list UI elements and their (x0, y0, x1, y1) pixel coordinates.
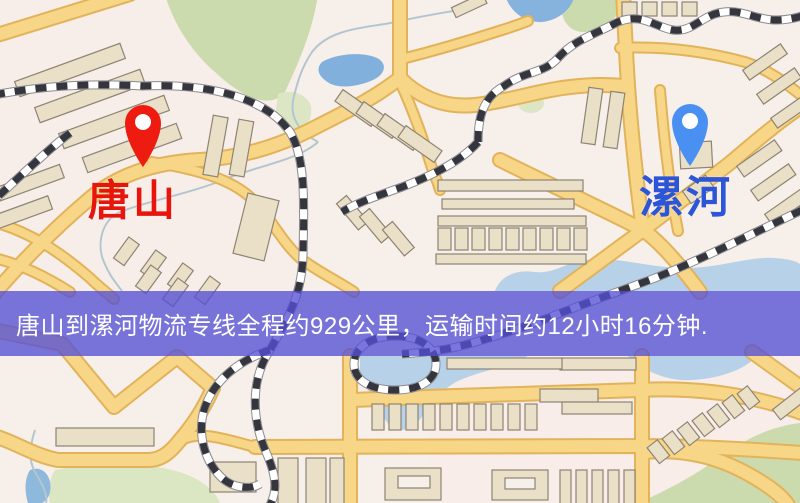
origin-city-label: 唐山 (88, 180, 178, 222)
map-canvas (0, 0, 800, 503)
map-view: 唐山 漯河 唐山到漯河物流专线全程约929公里，运输时间约12小时16分钟. (0, 0, 800, 503)
route-info-banner: 唐山到漯河物流专线全程约929公里，运输时间约12小时16分钟. (0, 291, 800, 356)
destination-city-label: 漯河 (639, 176, 733, 220)
origin-pin-icon[interactable] (120, 100, 166, 170)
route-info-text: 唐山到漯河物流专线全程约929公里，运输时间约12小时16分钟. (0, 306, 708, 341)
destination-pin-icon[interactable] (667, 99, 713, 169)
